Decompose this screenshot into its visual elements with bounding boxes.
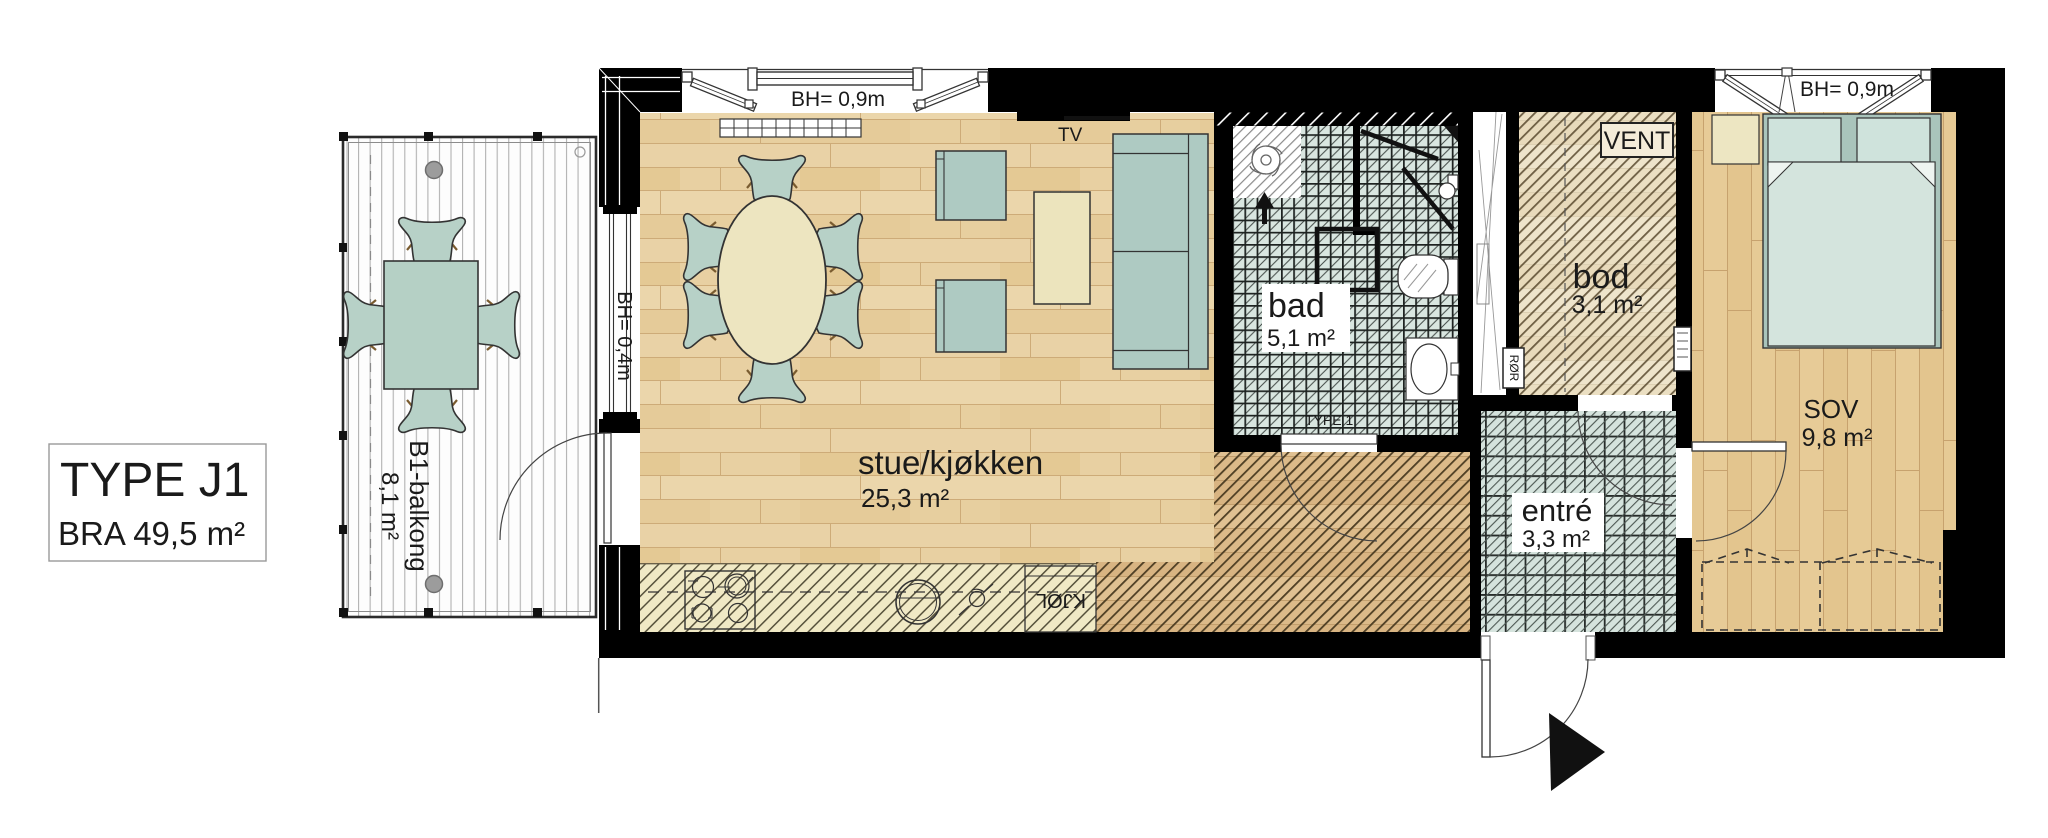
svg-text:BRA 49,5 m²: BRA 49,5 m² xyxy=(58,515,245,552)
svg-text:RØR: RØR xyxy=(1507,355,1521,382)
svg-text:VENT: VENT xyxy=(1604,127,1671,155)
svg-text:9,8 m²: 9,8 m² xyxy=(1802,424,1873,452)
svg-text:BH= 0,4m: BH= 0,4m xyxy=(613,291,635,380)
svg-text:BH= 0,9m: BH= 0,9m xyxy=(791,88,885,111)
svg-text:5,1 m²: 5,1 m² xyxy=(1267,325,1335,352)
svg-text:KJØL: KJØL xyxy=(1036,589,1086,611)
svg-text:3,1 m²: 3,1 m² xyxy=(1572,291,1643,319)
svg-text:TYPE J1: TYPE J1 xyxy=(60,454,249,507)
svg-text:B1-balkong: B1-balkong xyxy=(404,440,434,572)
svg-text:stue/kjøkken: stue/kjøkken xyxy=(858,444,1043,481)
svg-text:SOV: SOV xyxy=(1804,394,1860,424)
svg-text:BH= 0,9m: BH= 0,9m xyxy=(1800,78,1894,101)
svg-text:bad: bad xyxy=(1268,287,1325,325)
svg-text:TYPE 1: TYPE 1 xyxy=(1305,412,1353,428)
svg-text:8,1 m²: 8,1 m² xyxy=(376,472,403,540)
svg-text:entré: entré xyxy=(1522,493,1593,528)
svg-text:3,3 m²: 3,3 m² xyxy=(1522,526,1590,553)
svg-text:25,3 m²: 25,3 m² xyxy=(861,483,949,513)
svg-text:TV: TV xyxy=(1058,125,1083,146)
